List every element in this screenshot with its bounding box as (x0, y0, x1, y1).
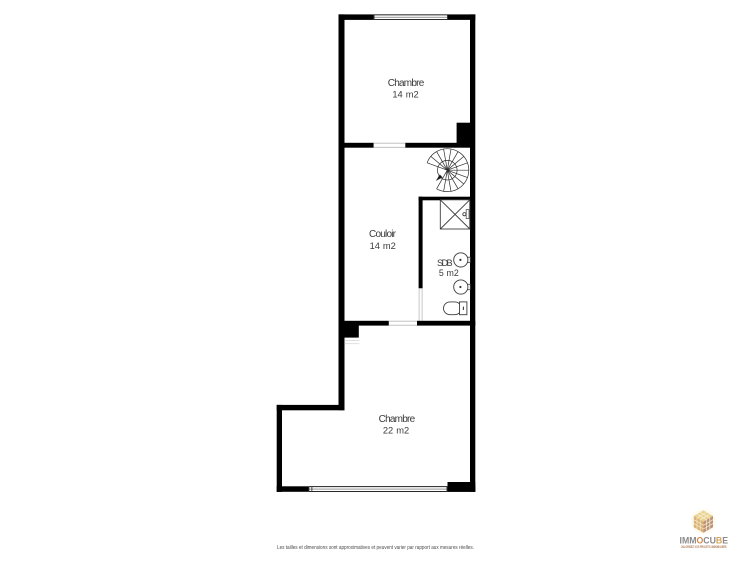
svg-text:Les tailles et dimensions sont: Les tailles et dimensions sont approxima… (277, 545, 474, 551)
svg-text:Chambre: Chambre (379, 414, 416, 425)
svg-text:22 m2: 22 m2 (383, 426, 409, 436)
svg-text:14 m2: 14 m2 (392, 90, 418, 100)
svg-text:Chambre: Chambre (388, 78, 425, 89)
svg-text:5 m2: 5 m2 (439, 268, 459, 278)
svg-text:Couloir: Couloir (369, 229, 397, 240)
svg-text:VALORISEZ VOS PROJETS IMMOBILI: VALORISEZ VOS PROJETS IMMOBILIERS (681, 545, 727, 549)
svg-text:SDB: SDB (437, 258, 453, 268)
svg-text:14 m2: 14 m2 (370, 241, 396, 251)
